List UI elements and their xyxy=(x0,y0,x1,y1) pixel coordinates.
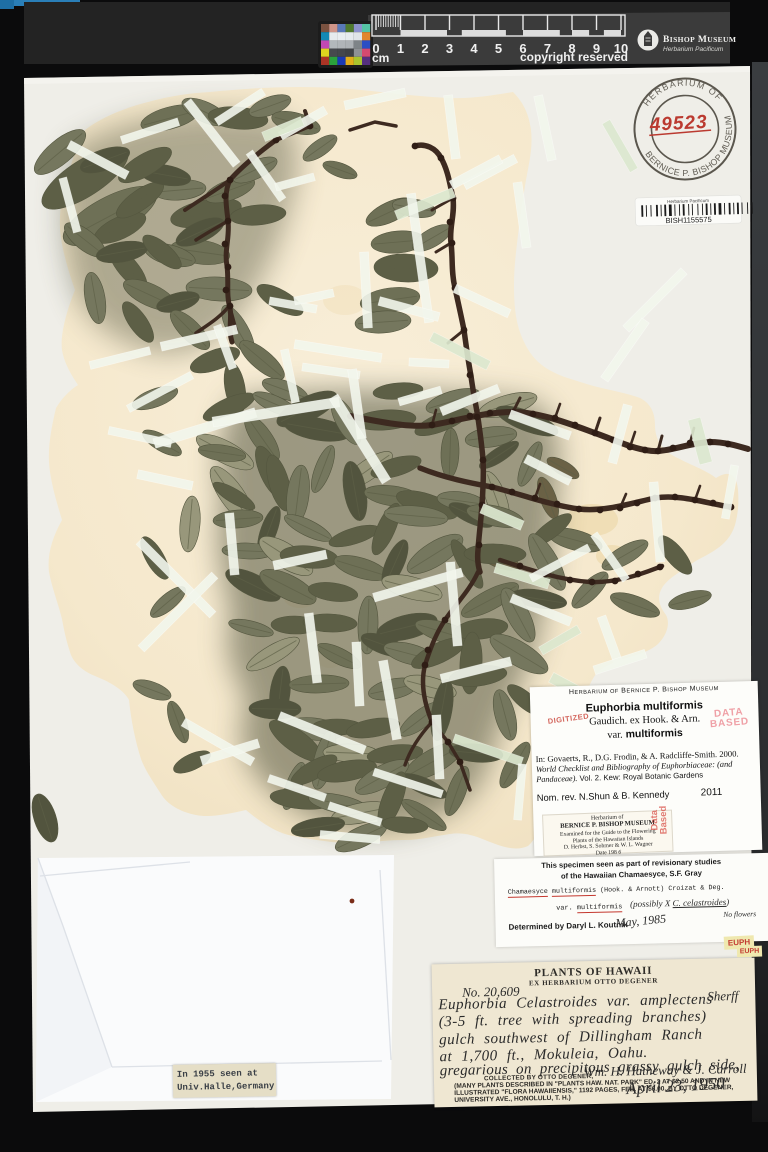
svg-text:3: 3 xyxy=(446,41,453,56)
svg-text:copyright reserved: copyright reserved xyxy=(520,50,628,64)
svg-text:cm: cm xyxy=(372,51,389,65)
svg-text:2: 2 xyxy=(421,41,428,56)
svg-text:BISHOP MUSEUM: BISHOP MUSEUM xyxy=(663,35,736,45)
svg-text:Herbarium Pacificum: Herbarium Pacificum xyxy=(663,46,724,53)
svg-text:5: 5 xyxy=(495,41,502,56)
svg-text:1: 1 xyxy=(397,41,404,56)
svg-text:BISH1155575: BISH1155575 xyxy=(665,215,711,225)
svg-text:4: 4 xyxy=(470,41,478,56)
